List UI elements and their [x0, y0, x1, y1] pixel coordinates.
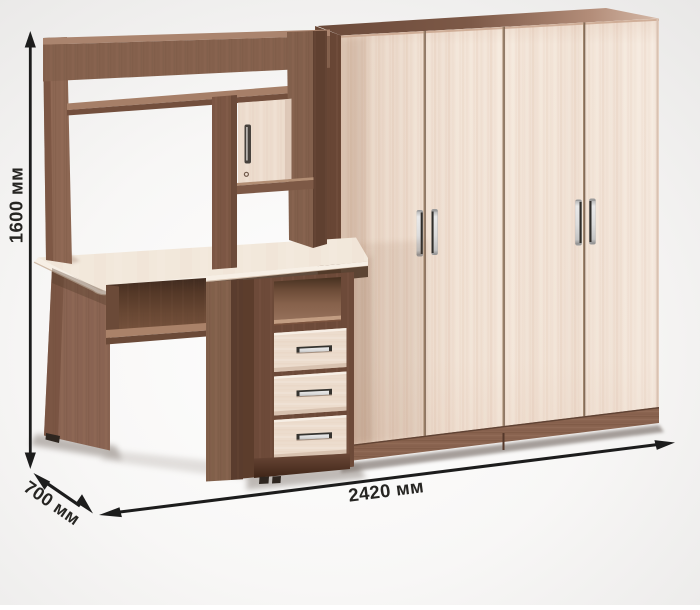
svg-text:1600 мм: 1600 мм: [6, 167, 27, 243]
